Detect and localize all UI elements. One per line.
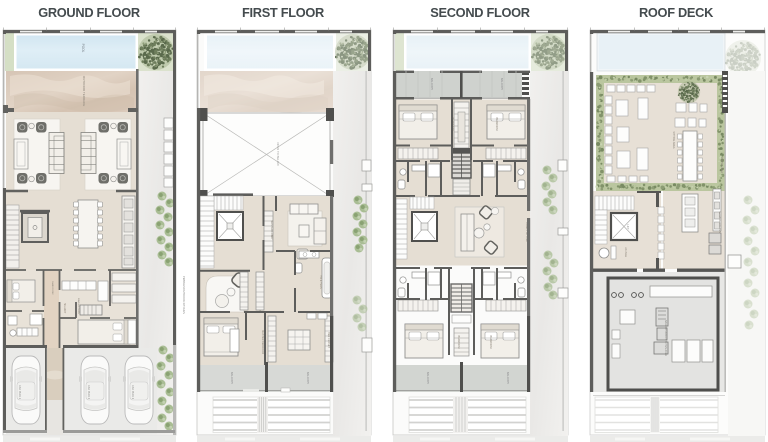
- svg-text:BALCONY: BALCONY: [426, 372, 429, 384]
- svg-text:HALLWAY: HALLWAY: [63, 303, 66, 314]
- svg-text:OUTDOOR TERRACE: OUTDOOR TERRACE: [82, 76, 86, 106]
- svg-text:LIFT: LIFT: [626, 224, 630, 230]
- svg-text:MASTER BEDROOM: MASTER BEDROOM: [261, 330, 264, 354]
- svg-text:HIS & HERS: HIS & HERS: [319, 275, 322, 289]
- svg-text:BALCONY: BALCONY: [306, 372, 309, 384]
- svg-text:SERVING KITCHEN: SERVING KITCHEN: [718, 211, 721, 233]
- svg-text:DINING AREA: DINING AREA: [720, 157, 723, 173]
- svg-text:MAID ROOM: MAID ROOM: [51, 282, 54, 295]
- svg-text:BALCONY: BALCONY: [500, 78, 503, 90]
- svg-text:CAR PARK 2: CAR PARK 2: [87, 385, 90, 400]
- svg-text:CAR PARK 3: CAR PARK 3: [131, 385, 134, 400]
- svg-text:SITTING AREA: SITTING AREA: [672, 131, 675, 149]
- svg-text:BAR/OUTDOOR KITCHEN AREA: BAR/OUTDOOR KITCHEN AREA: [664, 320, 667, 356]
- svg-text:MAID KITCHEN: MAID KITCHEN: [77, 298, 80, 314]
- svg-text:BEDROOM: BEDROOM: [495, 118, 498, 131]
- svg-text:LOUNGE: LOUNGE: [624, 247, 627, 258]
- svg-text:BALCONY: BALCONY: [430, 78, 433, 90]
- svg-text:BALCONY: BALCONY: [506, 372, 509, 384]
- svg-text:BALCONY: BALCONY: [230, 372, 233, 384]
- svg-text:PEBBLES/OUTDOOR KITCHEN: PEBBLES/OUTDOOR KITCHEN: [182, 276, 186, 314]
- svg-text:CAR PARK 1: CAR PARK 1: [18, 385, 21, 400]
- svg-text:HER CLOSET: HER CLOSET: [327, 332, 330, 348]
- svg-text:BEDROOM: BEDROOM: [489, 336, 492, 349]
- svg-text:OPEN TO BELOW: OPEN TO BELOW: [276, 142, 280, 166]
- svg-text:POOL: POOL: [81, 44, 85, 53]
- svg-text:MASTER LOBBY: MASTER LOBBY: [270, 220, 273, 240]
- svg-text:BEDROOM: BEDROOM: [457, 336, 460, 349]
